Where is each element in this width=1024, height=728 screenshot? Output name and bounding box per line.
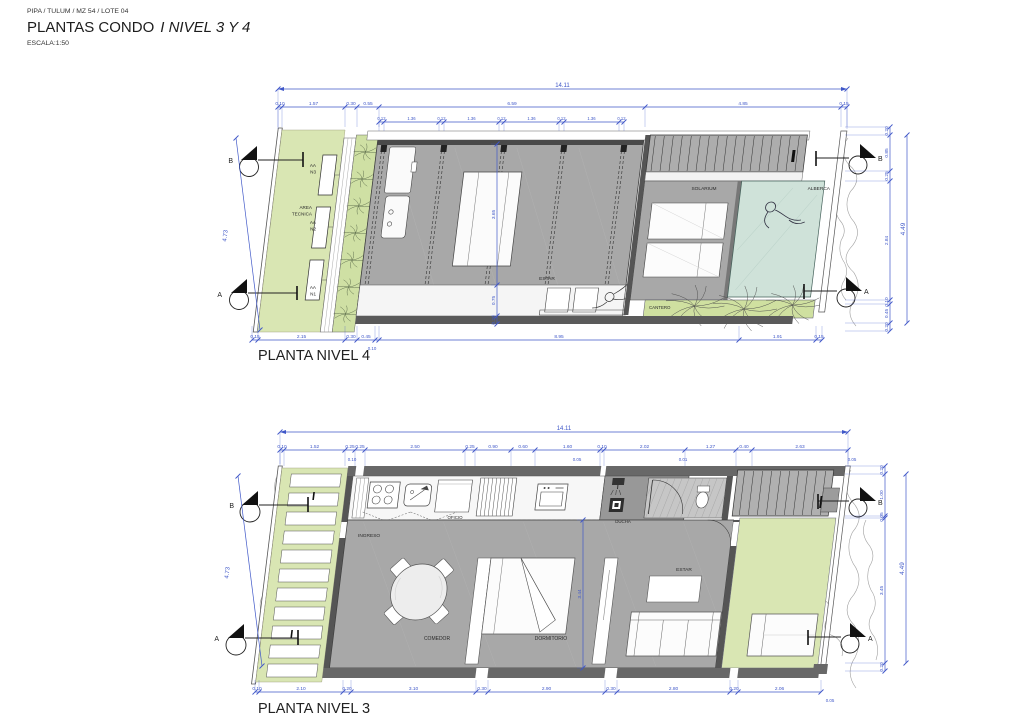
dim-label: 0.40 <box>739 444 749 450</box>
dim-label: 14.11 <box>557 426 572 432</box>
dim-label: 1.52 <box>310 444 320 450</box>
room-label-cantero: CANTERO <box>649 305 671 310</box>
sheet-title-main: PLANTAS CONDO <box>27 19 154 36</box>
bed <box>482 558 575 634</box>
room-label-dormitorio: DORMITORIO <box>535 636 568 642</box>
dim-label: 0.20 <box>491 315 497 325</box>
dim-label: 3.45 <box>879 586 885 596</box>
dim-label: 4.49 <box>900 222 907 235</box>
plan3-stairs <box>732 470 834 516</box>
dim-label: 0.45 <box>361 334 371 340</box>
dim-chain: 0.102.100.203.100.302.900.302.800.202.06 <box>252 680 823 695</box>
drawing-sheet: PIPA / TULUM / MZ 54 / LOTE 04 PLANTAS C… <box>0 0 1024 728</box>
dim-label: 2.02 <box>640 444 650 450</box>
dim-label: 6.59 <box>507 101 517 107</box>
dim-label: 0.10 <box>368 346 377 351</box>
room-label-alberca: ALBERCA <box>808 186 831 192</box>
drain-icon <box>609 498 625 512</box>
dim-label: 4.73 <box>222 229 229 242</box>
floor-plan-canvas: PIPA / TULUM / MZ 54 / LOTE 04 PLANTAS C… <box>0 0 1024 728</box>
dim-label: 2.90 <box>542 686 552 692</box>
dim-label: 0.20 <box>879 662 885 672</box>
stair-landing <box>821 488 840 512</box>
room-label-ingreso: INGRESO <box>358 533 380 539</box>
dim-label: 4.49 <box>899 562 906 575</box>
stair-landing <box>645 172 803 181</box>
stove-icon <box>367 482 400 508</box>
dim-label: 0.25 <box>345 444 355 450</box>
dim-label: 2.80 <box>669 686 679 692</box>
dim-label: 0.05 <box>848 457 857 462</box>
room-label-ducha: DUCHA <box>615 519 631 524</box>
dim-label: 2.10 <box>296 686 306 692</box>
dim-label: 0.30 <box>346 334 356 340</box>
counter-cabinet <box>435 480 473 512</box>
dim-label: 0.15 <box>839 101 849 107</box>
dim-label: 1.57 <box>309 101 319 107</box>
bench-cushion <box>545 288 571 312</box>
dim-label: 0.20 <box>879 465 885 475</box>
dim-label: 0.25 <box>465 444 475 450</box>
dim-label: 0.10 <box>277 444 287 450</box>
dim-label: 2.50 <box>410 444 420 450</box>
room-label-solarium: SOLARIUM <box>691 186 716 192</box>
dim-label: 0.60 <box>518 444 528 450</box>
dim-label: 4.85 <box>738 101 748 107</box>
dim-label: 0.10 <box>884 297 890 307</box>
plan3-title: PLANTA NIVEL 3 <box>258 701 370 717</box>
dim-label: 0.05 <box>879 512 885 522</box>
room-label-aa-n2: AAN2 <box>310 220 317 232</box>
plan4-top-beam <box>377 140 644 145</box>
section-marker-b-right: B <box>816 144 883 174</box>
prep-counter-icon <box>403 484 432 506</box>
sheet-title: PLANTAS CONDOI NIVEL 3 Y 4 <box>27 19 250 36</box>
room-label-oficio: OFICIO <box>447 515 463 520</box>
dining-set <box>382 557 456 625</box>
dim-label: 0.20 <box>342 686 352 692</box>
dim-label: 0.10 <box>348 457 357 462</box>
dim-label: 8.95 <box>554 334 564 340</box>
dim-label: 0.85 <box>884 148 890 158</box>
dim-label: 1.91 <box>773 334 783 340</box>
room-label-comedor: COMEDOR <box>424 636 451 642</box>
plan3-building <box>252 466 853 684</box>
dim-label: 0.15 <box>250 334 260 340</box>
section-letter: A <box>864 289 869 296</box>
bench-cushion <box>573 288 599 312</box>
dim-label: 0.30 <box>346 101 356 107</box>
plan4-building <box>253 128 847 332</box>
dim-label: 2.15 <box>297 334 307 340</box>
dim-chain: 0.121.360.121.360.121.360.121.360.12 <box>377 116 627 131</box>
dim-label: 1.00 <box>879 490 885 500</box>
dim-label: 1.36 <box>467 116 476 121</box>
dim-label: 0.05 <box>573 457 582 462</box>
sheet-header: PIPA / TULUM / MZ 54 / LOTE 04 PLANTAS C… <box>27 8 250 47</box>
dim-label: 0.20 <box>884 126 890 136</box>
dim-chain: 4.73 <box>222 136 262 333</box>
solarium-floor <box>630 181 742 300</box>
dim-label: 0.90 <box>488 444 498 450</box>
plan4-title: PLANTA NIVEL 4 <box>258 348 370 364</box>
dim-label: 0.55 <box>363 101 373 107</box>
dim-label: 1.36 <box>587 116 596 121</box>
dim-label: 0.10 <box>275 101 285 107</box>
project-line: PIPA / TULUM / MZ 54 / LOTE 04 <box>27 8 129 15</box>
dim-label: 0.45 <box>884 309 890 319</box>
section-letter: A <box>214 636 219 643</box>
dim-label: 0.12 <box>377 116 386 121</box>
dim-label: 0.30 <box>477 686 487 692</box>
dim-label: 0.75 <box>491 296 497 306</box>
sofa <box>626 612 721 656</box>
dim-label: 1.60 <box>563 444 573 450</box>
dim-label: 0.12 <box>437 116 446 121</box>
dim-label: 0.01 <box>679 457 688 462</box>
dim-label: 0.10 <box>597 444 607 450</box>
washer-icon <box>535 484 568 510</box>
room-label-aa-n1: AAN1 <box>310 285 317 297</box>
dim-label: 0.20 <box>729 686 739 692</box>
dim-label: 0.30 <box>606 686 616 692</box>
room-label-estar: ESTAR <box>539 276 555 282</box>
scale-note: ESCALA:1:50 <box>27 40 69 47</box>
sheet-title-italic: I NIVEL 3 Y 4 <box>160 19 250 36</box>
dim-label: 0.05 <box>826 698 835 703</box>
dim-label: 0.10 <box>252 686 262 692</box>
dim-label: 0.25 <box>884 171 890 181</box>
plan4-bottom-wall <box>355 316 793 324</box>
dim-label: 2.06 <box>775 686 785 692</box>
plan3-bottom-wall <box>322 668 819 678</box>
bathroom <box>644 478 727 518</box>
dim-label: 0.12 <box>617 116 626 121</box>
dim-chain: 4.49 <box>900 133 910 326</box>
dim-label: 3.10 <box>409 686 419 692</box>
shelving-unit <box>476 478 517 516</box>
dim-label: 1.36 <box>407 116 416 121</box>
dim-label: 1.27 <box>706 444 716 450</box>
section-letter: B <box>229 503 234 510</box>
section-letter: B <box>878 500 883 507</box>
pool-alberca <box>728 181 825 297</box>
dim-chain: 4.49 <box>899 472 909 666</box>
coffee-table <box>647 576 702 602</box>
dim-label: 14.11 <box>555 83 570 89</box>
section-letter: A <box>217 292 222 299</box>
section-letter: B <box>228 158 233 165</box>
deck-table <box>452 172 522 266</box>
section-letter: A <box>868 636 873 643</box>
dim-label: 0.15 <box>814 334 824 340</box>
dim-label: 0.12 <box>557 116 566 121</box>
dim-label: 0.20 <box>884 322 890 332</box>
dim-label: 4.73 <box>224 566 231 579</box>
section-letter: B <box>878 156 883 163</box>
dim-label: 2.84 <box>884 236 890 246</box>
room-label-estar3: ESTAR <box>676 567 692 573</box>
dim-label: 1.36 <box>527 116 536 121</box>
dim-label: 0.12 <box>497 116 506 121</box>
dim-label: 3.44 <box>577 589 583 599</box>
room-label-aa-n3: AAN3 <box>310 163 317 175</box>
dim-label: 2.63 <box>795 444 805 450</box>
dim-label: 0.25 <box>355 444 365 450</box>
dim-chain: 0.101.520.250.252.500.250.900.601.600.10… <box>277 444 850 466</box>
dim-label: 3.65 <box>491 210 497 220</box>
